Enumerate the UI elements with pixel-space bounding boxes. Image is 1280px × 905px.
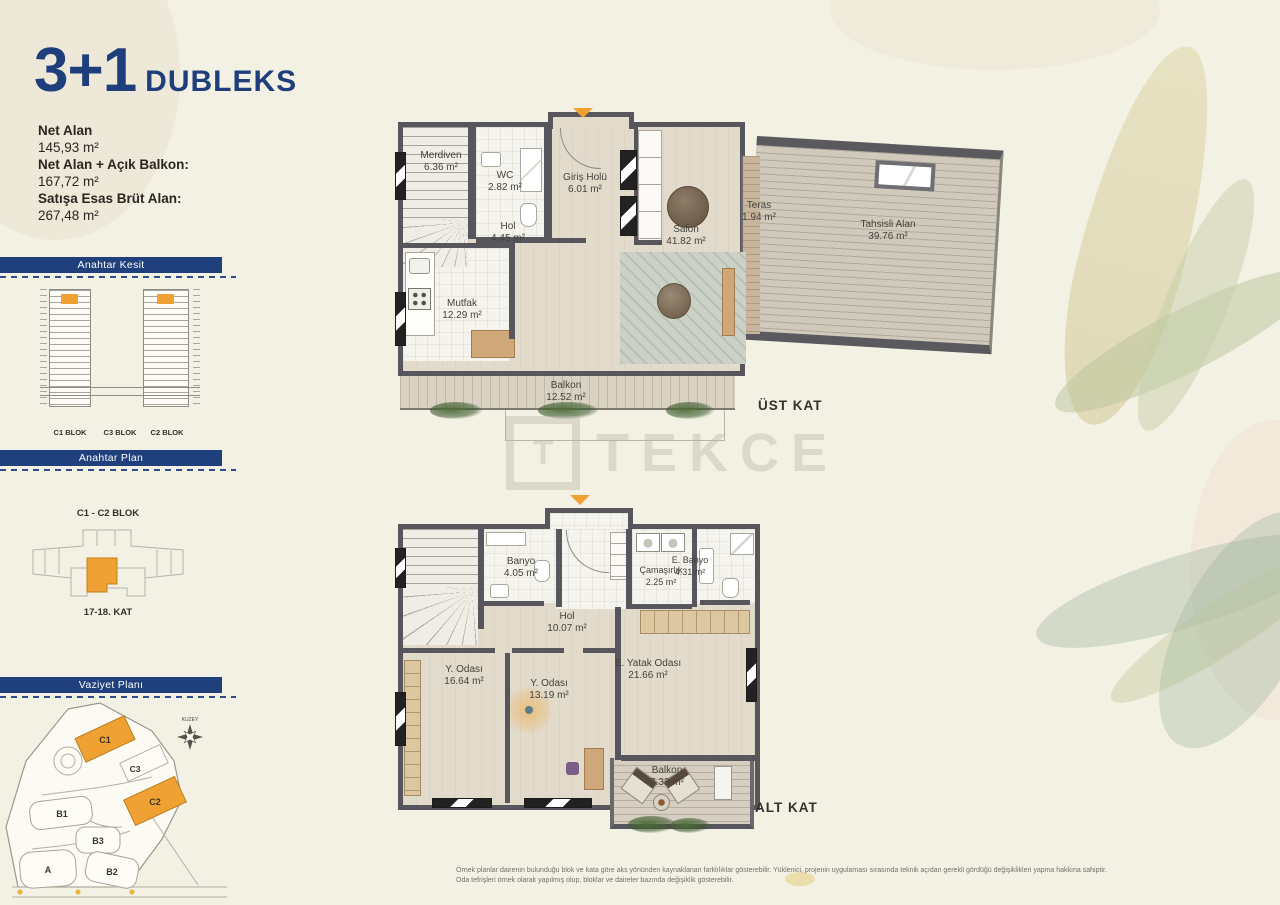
tower-c1: [49, 289, 91, 407]
key-section-diagram: C1 BLOK C3 BLOK C2 BLOK: [40, 285, 200, 435]
interior-wall: [478, 529, 484, 629]
area-value: 167,72 m²: [38, 173, 189, 190]
kitchen-sink: [409, 258, 430, 274]
block-label-c2: C2 BLOK: [144, 428, 190, 437]
desk: [584, 748, 604, 790]
room-label-ebanyo: E. Banyo 4.31 m²: [672, 554, 709, 578]
room-label-giris-holu: Giriş Holü 6.01 m²: [563, 172, 607, 196]
podium-line: [40, 395, 200, 396]
section-header-site-plan: Vaziyet Planı: [0, 677, 222, 693]
room-label-salon: Salon 41.82 m²: [666, 224, 705, 248]
entry-wardrobe: [638, 130, 662, 242]
interior-wall: [509, 243, 515, 339]
svg-text:KUZEY: KUZEY: [182, 717, 199, 723]
window: [620, 196, 637, 236]
unit-type-label: DUBLEKS: [145, 65, 297, 98]
area-value: 145,93 m²: [38, 139, 189, 156]
wardrobe: [640, 610, 750, 634]
disclaimer-line-2: Oda tefrişleri örnek olarak yapılmış olu…: [456, 876, 733, 885]
lower-floor-tag: ALT KAT: [755, 800, 818, 815]
room-label-teras: Teras 1.94 m²: [742, 200, 776, 224]
washer: [636, 533, 660, 552]
room-label-banyo: Banyo 4.05 m²: [504, 556, 538, 580]
interior-wall: [505, 653, 510, 803]
window: [395, 292, 406, 346]
site-block-c2-label: C2: [149, 797, 161, 807]
window: [746, 648, 757, 702]
balcony-plants: [430, 402, 482, 419]
interior-wall: [700, 600, 750, 605]
window: [620, 150, 637, 190]
area-info: Net Alan 145,93 m² Net Alan + Açık Balko…: [38, 122, 189, 224]
desk-chair: [566, 762, 579, 775]
key-plan-drawing: [25, 524, 191, 602]
window: [432, 798, 492, 808]
watercolor-blob: [830, 0, 1160, 70]
section-header-key-plan: Anahtar Plan: [0, 450, 222, 466]
dashed-divider: [0, 276, 236, 278]
room-label-merdiven: Merdiven 6.36 m²: [420, 150, 461, 174]
hall-shoe-cabinet: [610, 532, 627, 580]
ebanyo-shower: [730, 533, 754, 555]
section-header-key-section: Anahtar Kesit: [0, 257, 222, 273]
dashed-divider: [0, 696, 236, 698]
site-block-b1-label: B1: [56, 809, 68, 819]
balcony-plants: [670, 818, 710, 833]
site-block-c3-label: C3: [130, 764, 141, 774]
unit-type-number: 3+1: [34, 36, 136, 105]
interior-wall: [484, 601, 544, 606]
balcony-ac-unit: [714, 766, 732, 800]
floor-plan-brochure: { "title": { "big": "3+1", "small": "DUB…: [0, 0, 1280, 905]
wardrobe: [404, 660, 421, 796]
room-label-eyatak: E. Yatak Odası 21.66 m²: [615, 658, 681, 682]
skylight: [874, 160, 936, 192]
highlighted-floor: [61, 294, 78, 304]
banyo-vanity: [486, 532, 526, 546]
room-label-tahsisli-alan: Tahsisli Alan 39.76 m²: [860, 219, 915, 243]
area-label: Net Alan: [38, 122, 189, 139]
watercolor-leaf: [1098, 531, 1280, 722]
ebanyo-toilet: [722, 578, 739, 598]
room-label-mutfak: Mutfak 12.29 m²: [442, 298, 481, 322]
interior-wall: [552, 238, 586, 243]
site-block-a-label: A: [45, 865, 52, 875]
site-plan-drawing: C1 C3 C2 B1 B3 B2 A KUZEY: [2, 699, 234, 905]
watermark: T TEKCE: [506, 416, 839, 490]
highlighted-unit: [87, 558, 117, 592]
washer: [661, 533, 685, 552]
coffee-table: [657, 283, 691, 319]
interior-wall: [615, 607, 621, 760]
watercolor-leaf: [1126, 487, 1280, 773]
interior-wall: [626, 529, 632, 609]
block-label-c1: C1 BLOK: [47, 428, 93, 437]
watercolor-leaf: [1039, 33, 1235, 437]
interior-wall: [621, 755, 755, 761]
area-label: Satışa Esas Brüt Alan:: [38, 190, 189, 207]
key-plan-block-label: C1 - C2 BLOK: [77, 508, 139, 519]
watercolor-leaf: [1042, 248, 1280, 435]
watermark-logo: T: [506, 416, 580, 490]
entrance-arrow-icon: [573, 108, 593, 118]
site-block-b2-label: B2: [106, 867, 118, 877]
highlighted-floor: [157, 294, 174, 304]
room-label-yodasi-2: Y. Odası 13.19 m²: [529, 678, 568, 702]
wc-sink: [481, 152, 501, 167]
site-block-b3-label: B3: [92, 836, 104, 846]
watermark-text: TEKCE: [596, 422, 839, 484]
dining-table: [667, 186, 709, 228]
tv-console: [722, 268, 735, 336]
room-label-balkon-lower: Balkon 7.33 m²: [650, 765, 684, 789]
page-title: 3+1DUBLEKS: [34, 42, 297, 100]
staircase-winder-lower: [403, 587, 478, 645]
room-label-yodasi-1: Y. Odası 16.64 m²: [444, 664, 483, 688]
staircase-lower: [403, 529, 478, 587]
entrance-vestibule-lower: [545, 508, 633, 529]
interior-wall: [468, 127, 476, 239]
dashed-divider: [0, 469, 236, 471]
interior-wall: [632, 604, 692, 609]
window: [395, 548, 406, 588]
room-label-hol-lower: Hol 10.07 m²: [547, 611, 586, 635]
interior-wall: [403, 648, 495, 653]
kitchen-stove: [408, 288, 431, 310]
area-value: 267,48 m²: [38, 207, 189, 224]
tower-c2: [143, 289, 189, 407]
window: [395, 152, 406, 200]
podium-line: [40, 387, 200, 388]
window: [395, 692, 406, 746]
upper-floor-tag: ÜST KAT: [758, 398, 823, 413]
watercolor-leaf: [1026, 511, 1280, 670]
room-label-balkon-upper: Balkon 12.52 m²: [546, 380, 585, 404]
area-label: Net Alan + Açık Balkon:: [38, 156, 189, 173]
watercolor-leaf: [1117, 168, 1276, 442]
roof-deck: [745, 136, 1004, 354]
watercolor-blob: [1190, 420, 1280, 720]
interior-wall: [634, 240, 662, 245]
entrance-arrow-icon: [570, 495, 590, 505]
wc-shower: [520, 148, 542, 192]
key-plan-floor-label: 17-18. KAT: [84, 607, 132, 618]
compass-icon: KUZEY: [177, 717, 203, 750]
disclaimer-line-1: Örnek planlar dairenin bulunduğu blok ve…: [456, 866, 1107, 875]
window: [524, 798, 592, 808]
balcony-plants: [628, 816, 676, 833]
block-label-c3: C3 BLOK: [97, 428, 143, 437]
banyo-sink: [490, 584, 509, 598]
interior-wall: [512, 648, 564, 653]
interior-wall: [556, 529, 562, 607]
balcony-table: [653, 794, 670, 811]
interior-wall: [544, 127, 552, 243]
room-label-wc: WC 2.82 m²: [488, 170, 522, 194]
room-label-hol-upper: Hol 4.45 m²: [491, 221, 525, 245]
site-block-c1-label: C1: [99, 735, 111, 745]
